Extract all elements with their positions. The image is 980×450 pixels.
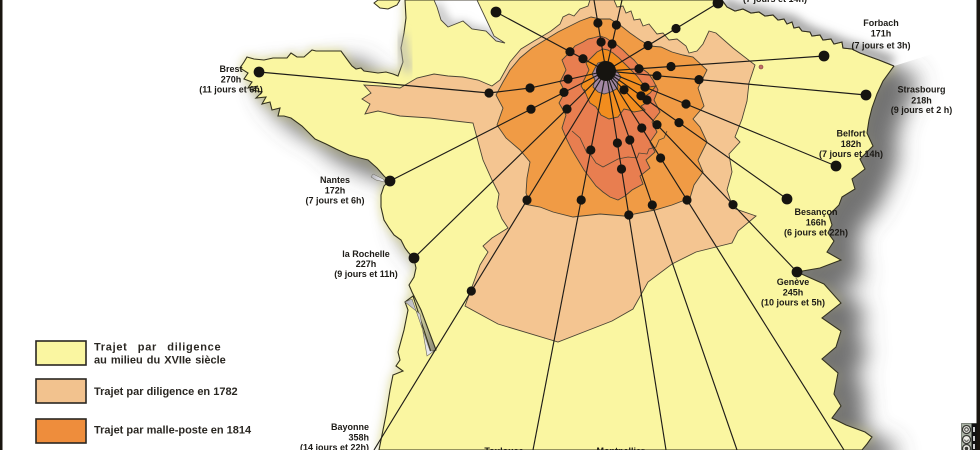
svg-text:au milieu du XVIIe siècle: au milieu du XVIIe siècle (94, 355, 226, 367)
svg-text:(9 jours et 11h): (9 jours et 11h) (334, 269, 398, 279)
svg-text:(11 jours et 6h): (11 jours et 6h) (199, 85, 263, 95)
svg-text:(9 jours et 2 h): (9 jours et 2 h) (891, 105, 953, 115)
svg-text:358h: 358h (348, 432, 369, 442)
svg-text:Trajet par diligence: Trajet par diligence (94, 342, 221, 354)
svg-text:Montpellier: Montpellier (596, 446, 644, 450)
svg-text:245h: 245h (783, 287, 804, 297)
svg-text:Trajet par diligence en 1782: Trajet par diligence en 1782 (94, 386, 238, 398)
svg-text:Belfort: Belfort (837, 129, 866, 139)
svg-text:(14 jours et 22h): (14 jours et 22h) (300, 443, 369, 450)
svg-text:166h: 166h (806, 217, 827, 227)
svg-text:(7 jours et 14h): (7 jours et 14h) (743, 0, 807, 4)
svg-text:171h: 171h (871, 28, 892, 38)
svg-text:Besançon: Besançon (794, 207, 837, 217)
svg-text:Trajet par malle-poste en 1814: Trajet par malle-poste en 1814 (94, 425, 252, 437)
svg-text:(7 jours et 14h): (7 jours et 14h) (819, 149, 883, 159)
svg-text:Nantes: Nantes (320, 175, 350, 185)
svg-text:227h: 227h (356, 259, 377, 269)
svg-text:Toulouse: Toulouse (484, 446, 523, 450)
svg-text:Strasbourg: Strasbourg (897, 84, 945, 94)
svg-text:172h: 172h (325, 185, 346, 195)
svg-text:Bayonne: Bayonne (331, 422, 369, 432)
svg-text:la Rochelle: la Rochelle (342, 249, 390, 259)
svg-text:Forbach: Forbach (863, 18, 899, 28)
svg-text:(6 jours et 22h): (6 jours et 22h) (784, 228, 848, 238)
svg-text:(7 jours et 3h): (7 jours et 3h) (851, 40, 910, 50)
svg-text:Brest: Brest (219, 64, 242, 74)
svg-text:Genève: Genève (777, 277, 810, 287)
svg-text:(10 jours et 5h): (10 jours et 5h) (761, 298, 825, 308)
svg-text:270h: 270h (221, 74, 242, 84)
svg-text:(7 jours et 6h): (7 jours et 6h) (305, 196, 364, 206)
svg-text:218h: 218h (911, 95, 932, 105)
svg-text:182h: 182h (841, 139, 862, 149)
